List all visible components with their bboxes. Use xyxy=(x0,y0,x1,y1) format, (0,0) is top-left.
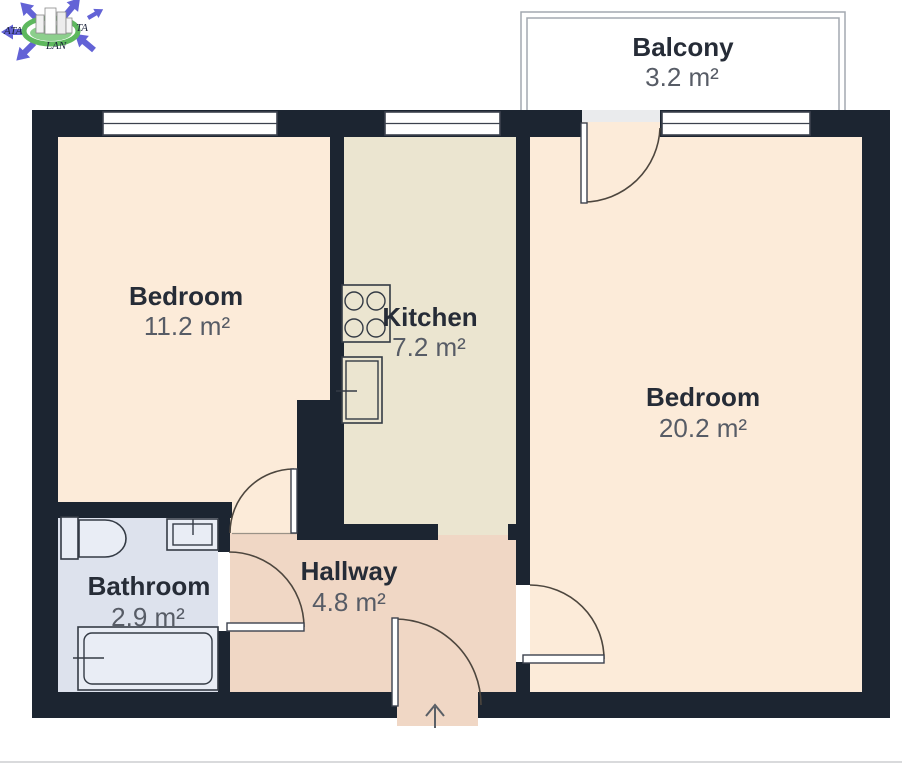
balcony-label: Balcony xyxy=(632,32,734,62)
entry-door-leaf xyxy=(392,618,398,706)
bedroom-right-label: Bedroom xyxy=(646,382,760,412)
wall-kitchen-right xyxy=(516,137,530,585)
bathroom-door-leaf xyxy=(227,623,304,631)
wall-right xyxy=(862,110,890,718)
windows xyxy=(103,112,810,135)
bathroom-label: Bathroom xyxy=(88,571,211,601)
bedroom-left-area: 11.2 m² xyxy=(144,311,231,341)
bedroom-right-area: 20.2 m² xyxy=(659,413,747,443)
wall-passage-jamb xyxy=(508,524,516,540)
wall-bedroom-right-below-door xyxy=(516,662,530,692)
wall-bathroom-right-lower xyxy=(218,631,230,692)
hallway-label: Hallway xyxy=(301,556,398,586)
bathroom-area: 2.9 m² xyxy=(111,602,185,632)
toilet-icon xyxy=(61,517,126,559)
floor-plan-canvas: Balcony 3.2 m² Bedroom 11.2 m² Kitchen 7… xyxy=(0,0,902,768)
wall-bathroom-top xyxy=(58,502,232,518)
bottom-divider xyxy=(0,761,902,763)
wall-left xyxy=(32,110,58,718)
kitchen-sink-icon xyxy=(336,357,382,423)
kitchen-label: Kitchen xyxy=(382,302,477,332)
hallway-area: 4.8 m² xyxy=(312,587,386,617)
logo-text-lan: LAN xyxy=(45,40,67,52)
bathtub-icon xyxy=(73,627,218,690)
balcony-door-leaf xyxy=(581,123,587,203)
balcony-area: 3.2 m² xyxy=(645,62,719,92)
bedroom-right-door-leaf xyxy=(523,655,604,663)
kitchen-area: 7.2 m² xyxy=(392,332,466,362)
bedroom-left-label: Bedroom xyxy=(129,281,243,311)
balcony-door-threshold xyxy=(582,110,660,122)
balcony-door-opening xyxy=(582,122,660,137)
wall-bedroom-door-jamb xyxy=(297,400,330,540)
wall-bathroom-right-upper xyxy=(218,518,230,552)
floor-plan-drawing: Balcony 3.2 m² Bedroom 11.2 m² Kitchen 7… xyxy=(0,0,902,768)
logo-text-ata: ATA xyxy=(3,25,23,37)
wall-kitchen-bottom xyxy=(297,524,438,540)
bedroom-left-door-leaf xyxy=(291,469,297,533)
bathroom-sink-icon xyxy=(167,519,218,550)
logo-text-ta: TA xyxy=(76,22,88,34)
